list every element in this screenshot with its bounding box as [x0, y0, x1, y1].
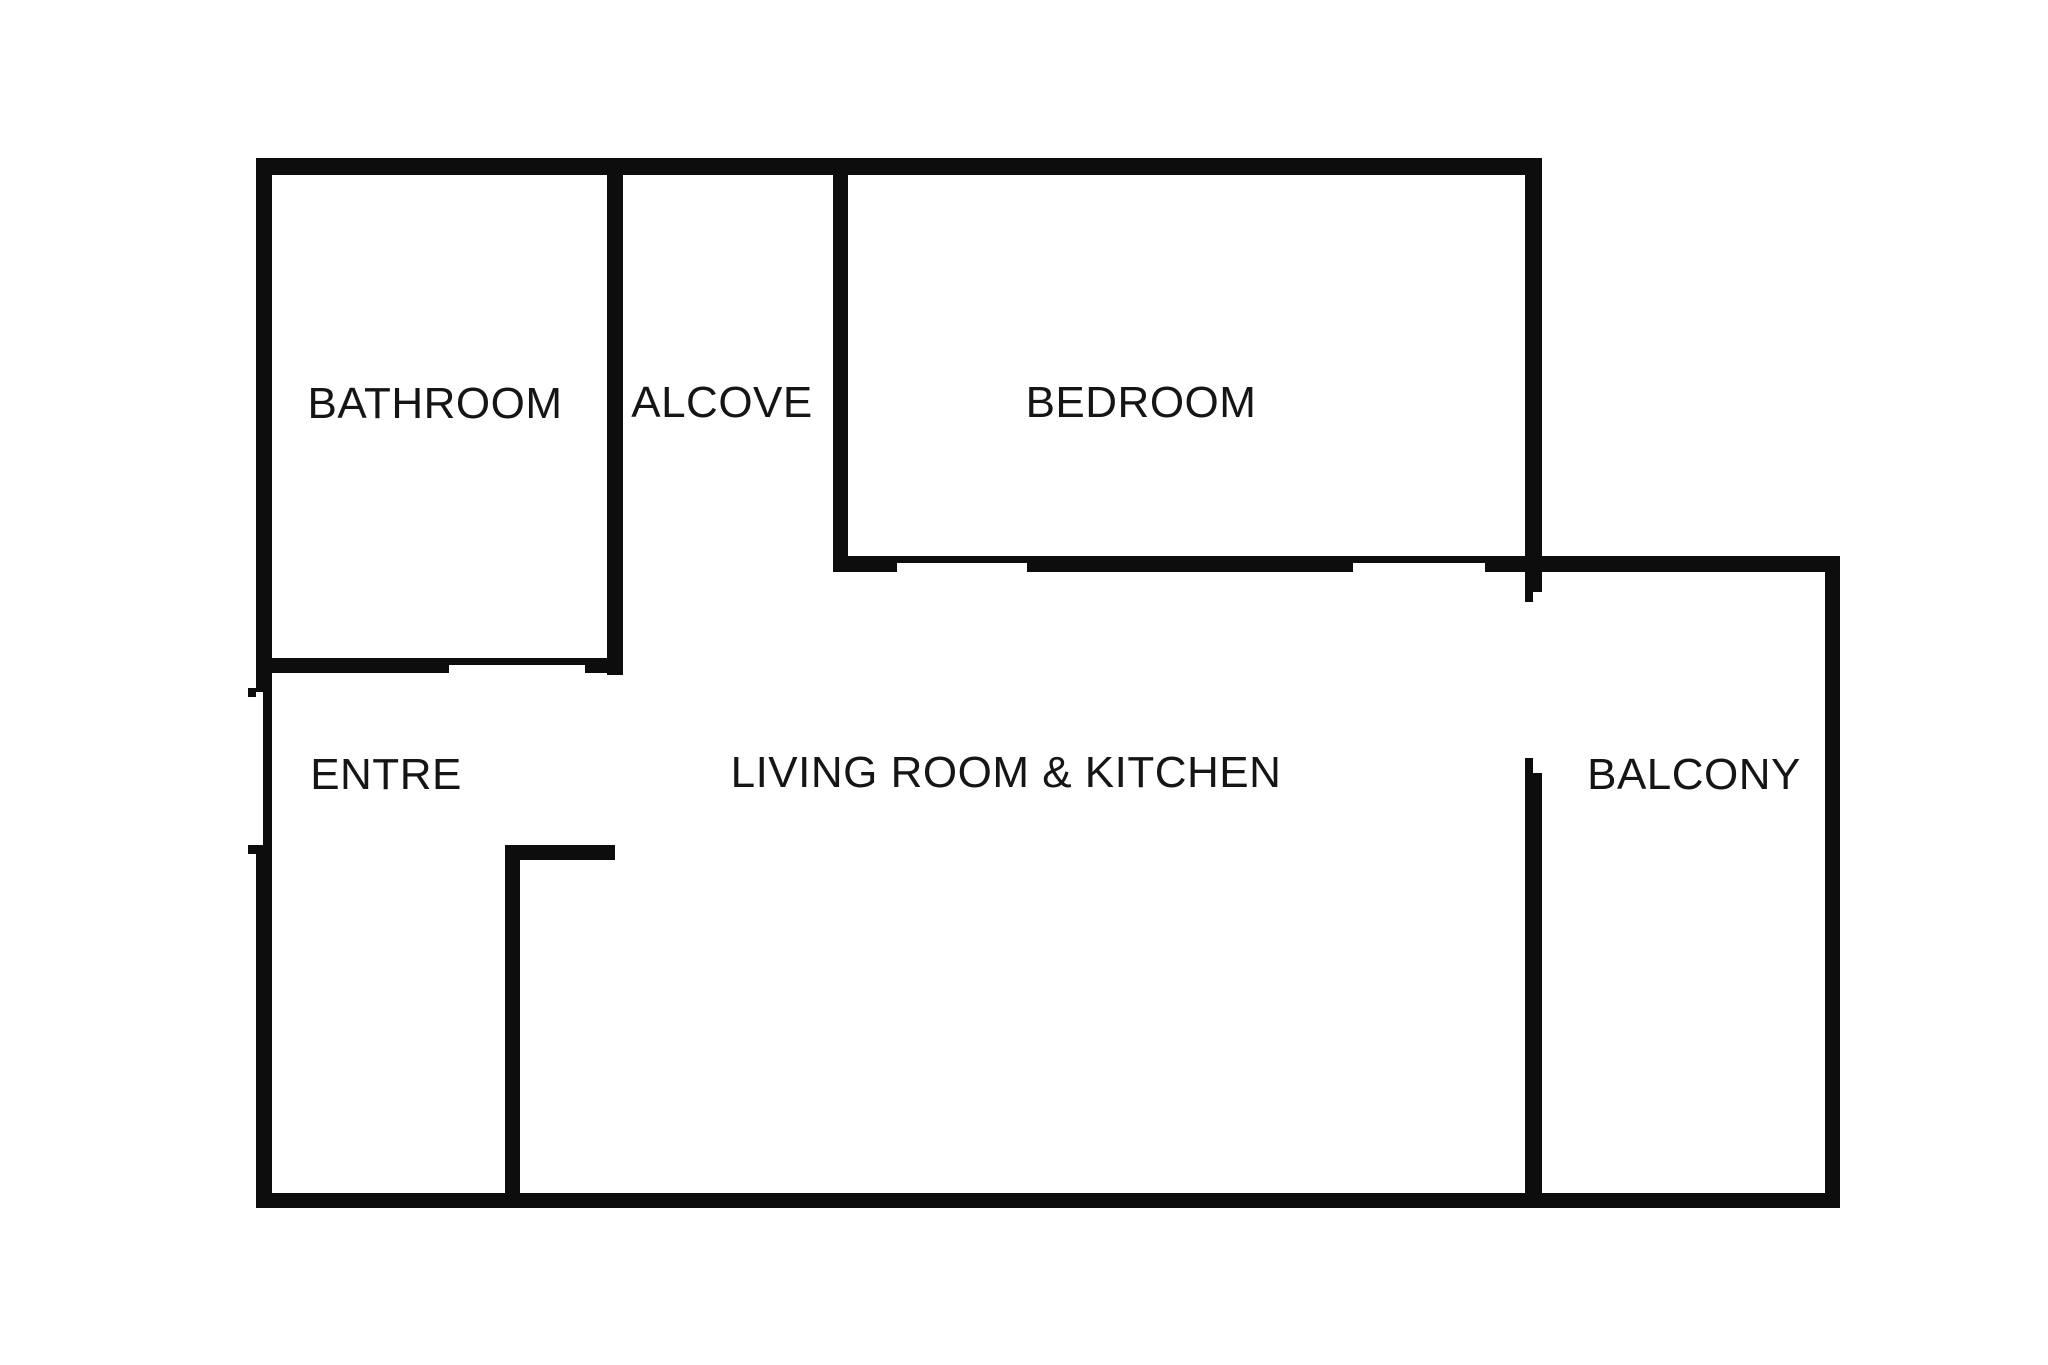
left-door-jamb-upper-wall — [248, 688, 256, 697]
outer-top-wall — [256, 158, 1542, 175]
outer-left-lower-wall — [256, 845, 272, 1208]
room-label-bedroom: BEDROOM — [1026, 378, 1257, 428]
bathroom-south-west-wall — [256, 658, 449, 673]
floor-plan-canvas: BATHROOMALCOVEBEDROOMENTRELIVING ROOM & … — [0, 0, 2048, 1365]
right-wall-upper-wall — [1525, 158, 1542, 572]
balcony-door-jamb-top-wall — [1525, 572, 1542, 592]
entre-wall-vertical-wall — [505, 845, 520, 1195]
balcony-top-wall — [1540, 556, 1828, 572]
outer-left-upper-wall — [256, 158, 272, 692]
bedroom-door2-line-wall — [1353, 556, 1485, 563]
left-door-jamb-lower-wall — [248, 845, 256, 854]
bedroom-south-b-wall — [1027, 556, 1353, 572]
room-label-entre: ENTRE — [310, 750, 462, 800]
balcony-right-wall — [1825, 556, 1840, 1208]
right-wall-lower-wall — [1525, 773, 1542, 1208]
room-label-living-room-kitchen: LIVING ROOM & KITCHEN — [731, 748, 1282, 798]
entre-wall-stub-wall — [505, 845, 615, 860]
balcony-door-line-top-wall — [1525, 592, 1533, 602]
bathroom-alcove-wall-wall — [607, 158, 623, 675]
bathroom-south-east-wall — [585, 658, 623, 673]
left-door-line-wall — [263, 692, 272, 845]
alcove-bedroom-wall-wall — [833, 158, 848, 572]
room-label-balcony: BALCONY — [1587, 750, 1801, 800]
room-label-bathroom: BATHROOM — [308, 379, 563, 429]
bathroom-door-line-wall — [449, 658, 585, 665]
balcony-door-line-bottom-wall — [1525, 758, 1533, 773]
floor-plan: BATHROOMALCOVEBEDROOMENTRELIVING ROOM & … — [0, 0, 2048, 1365]
bedroom-south-a-wall — [833, 556, 897, 572]
room-label-alcove: ALCOVE — [631, 378, 813, 428]
bedroom-door1-line-wall — [897, 556, 1027, 563]
outer-bottom-wall — [256, 1193, 1840, 1208]
